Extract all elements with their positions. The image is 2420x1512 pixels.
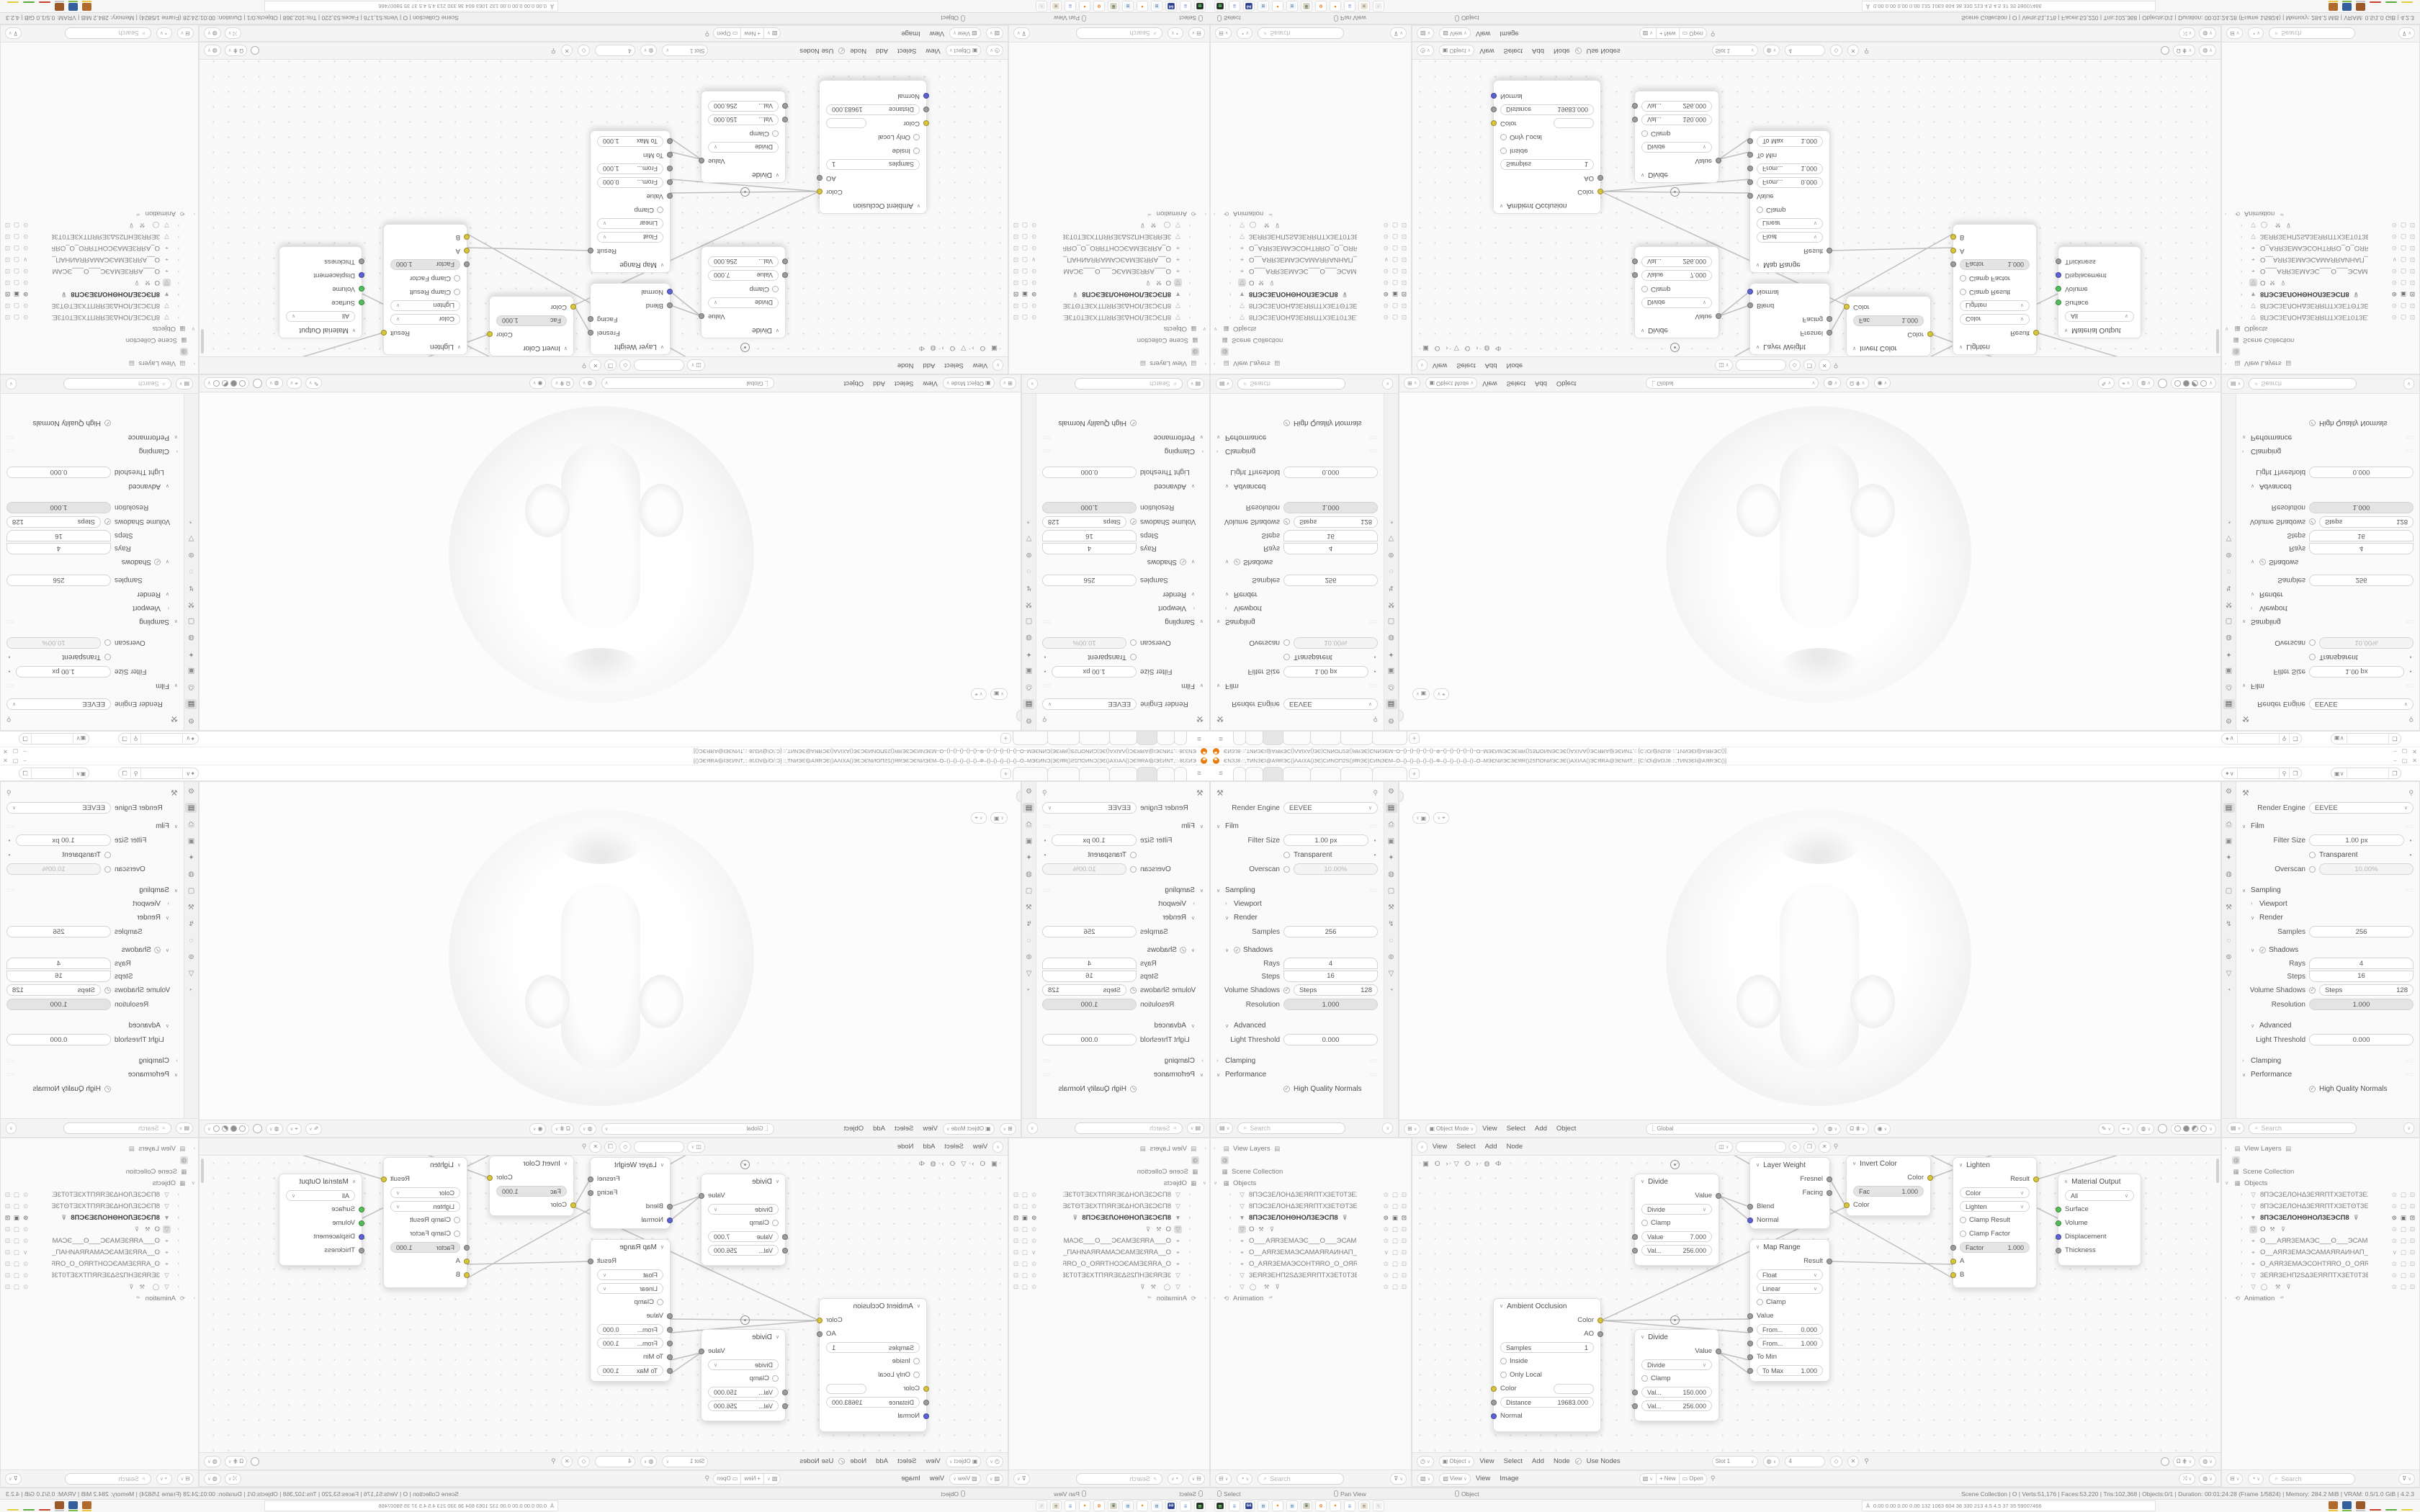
view-layer-tab-icon[interactable]: ▣ bbox=[1023, 666, 1035, 676]
toolbar-toggle-tab[interactable] bbox=[1399, 710, 1404, 721]
node-lighten[interactable]: ∨Lighten Result Color∨ Lighten∨ Clamp Re… bbox=[1953, 1157, 2037, 1288]
view-layer-selector[interactable]: ▣∨ ❐ bbox=[2331, 733, 2401, 744]
proportional-edit-button[interactable]: ◉∨ bbox=[529, 378, 547, 390]
material-datablock-icon[interactable]: ◍∨ bbox=[1763, 45, 1780, 57]
menu-image[interactable]: Image bbox=[1500, 1475, 1518, 1482]
node-material-output[interactable]: ∨Material Output All∨ Surface Volume Dis… bbox=[279, 1174, 362, 1266]
menu-view[interactable]: View bbox=[1476, 30, 1490, 37]
outliner-object[interactable]: 8ПЭС3ЕЛОНΔ3ЕЯRПТХ3ЕТ0Т3ЕХТ bbox=[1249, 1191, 1357, 1199]
blender-icon[interactable]: ● bbox=[1137, 1500, 1148, 1511]
workspace-tab[interactable] bbox=[1340, 732, 1373, 745]
menu-object[interactable]: Object bbox=[844, 1125, 864, 1133]
clamping-section[interactable]: Clamping bbox=[139, 447, 169, 455]
menu-image[interactable]: Image bbox=[1500, 30, 1518, 37]
scene-name-field[interactable] bbox=[2238, 734, 2280, 744]
performance-section[interactable]: Performance bbox=[1154, 433, 1195, 441]
retro-pc-icon[interactable]: ⌸ bbox=[1301, 1500, 1312, 1511]
performance-section[interactable]: Performance bbox=[1225, 1071, 1266, 1079]
viewport-canvas[interactable]: ∨▣ ∨⌖ bbox=[200, 394, 1021, 730]
steps-field[interactable]: 16 bbox=[6, 531, 111, 542]
properties-options-button[interactable]: ∨ bbox=[1027, 379, 1038, 390]
menu-add[interactable]: Add bbox=[876, 1457, 888, 1465]
viewport-gizmo-overlay-button[interactable]: ∨⌖ bbox=[971, 688, 986, 700]
vice-c64-icon[interactable]: 64 bbox=[1243, 1500, 1255, 1511]
pin-icon[interactable]: ⚲ bbox=[551, 47, 556, 55]
unlink-button[interactable]: ✕ bbox=[1847, 1456, 1860, 1467]
menu-add[interactable]: Add bbox=[873, 379, 885, 387]
viewport-subsection[interactable]: Viewport bbox=[2259, 900, 2287, 908]
node-ambient-occlusion[interactable]: ∨Ambient Occlusion Color AO Samples1 Ins… bbox=[1493, 1298, 1601, 1432]
viewport-gizmo-overlay-button[interactable]: ∨⌖ bbox=[1433, 688, 1448, 700]
light-threshold-field[interactable]: 0.000 bbox=[2309, 467, 2414, 478]
workspace-tab[interactable] bbox=[1013, 767, 1048, 780]
node-options-toggle[interactable] bbox=[2161, 1457, 2169, 1466]
outliner-object[interactable]: 8ПЭС3ЕЛОНΔ3ЕЯRПТХ3ЕТΘТ3ЕХТ bbox=[52, 1202, 160, 1210]
menu-node[interactable]: Node bbox=[850, 1457, 866, 1465]
volume-shadows-checkbox[interactable]: ✓ bbox=[1130, 519, 1137, 526]
object-tab-icon[interactable]: ▢ bbox=[1023, 886, 1035, 896]
menu-view[interactable]: View bbox=[923, 1125, 937, 1133]
data-tab-icon[interactable]: ▽ bbox=[1023, 968, 1035, 978]
notepad-icon[interactable]: ≣ bbox=[1229, 1500, 1240, 1511]
node-canvas[interactable]: ▣O› ▽O› ◍Φ ∨Ambient Occlusion Color AO S… bbox=[1412, 60, 2220, 356]
editor-type-button[interactable]: ▤∨ bbox=[176, 1122, 193, 1134]
outliner-camera[interactable]: О__АЯR3ЕМАЭСАМАЯRАИНАП__С bbox=[52, 1248, 160, 1256]
outliner-camera[interactable]: О__АЯR3ЕМАЭСАМАЯRАИНАП__С bbox=[52, 256, 160, 264]
outliner-object[interactable]: 8ПЭС3ЕЛОНΔ3ЕЯRПТХ3ЕТ0Т3ЕХТ bbox=[1063, 314, 1171, 322]
add-workspace-button[interactable]: + bbox=[1000, 733, 1011, 744]
fake-user-button[interactable]: ◇ bbox=[578, 45, 589, 57]
xray-toggle-button[interactable] bbox=[253, 379, 262, 388]
outliner-search-input[interactable]: ⌕Search bbox=[1076, 28, 1162, 40]
snap-toggle-group[interactable]: Ω⋕∨ bbox=[1846, 1123, 1868, 1135]
menu-select[interactable]: Select bbox=[944, 1143, 963, 1151]
scene-pin-icon[interactable]: ⚲ bbox=[2280, 768, 2290, 778]
outliner-camera[interactable]: О___АЯR3ЕМАЭС___О___ЭСАМ3 bbox=[1249, 1237, 1357, 1245]
workspace-tab[interactable] bbox=[1079, 732, 1110, 745]
render-tab-icon[interactable]: ▤ bbox=[2223, 803, 2235, 813]
tray-app-icon[interactable] bbox=[2329, 1, 2338, 11]
calculator-icon-2[interactable]: ⊞ bbox=[1122, 1500, 1134, 1511]
object-tab-icon[interactable]: ▢ bbox=[2223, 616, 2235, 626]
workspace-tab-active[interactable] bbox=[1137, 767, 1157, 780]
outliner-view-layers[interactable]: View Layers bbox=[138, 360, 176, 368]
steps-field[interactable]: 16 bbox=[1042, 531, 1137, 542]
clamping-section[interactable]: Clamping bbox=[1165, 1057, 1195, 1065]
modifiers-tab-icon[interactable]: ⚒ bbox=[186, 600, 197, 610]
outliner-camera[interactable]: О_АЯR3ЕМАЭСОНТЯRО_О_ОЯRТН bbox=[1249, 1260, 1357, 1268]
resolution-field[interactable]: 1.000 bbox=[6, 999, 111, 1010]
particles-tab-icon[interactable]: ↯ bbox=[1023, 919, 1035, 929]
outliner-scene-collection[interactable]: Scene Collection bbox=[2243, 337, 2294, 345]
transparent-checkbox[interactable] bbox=[1283, 654, 1290, 661]
view-layer-name-field[interactable] bbox=[31, 768, 73, 778]
constraints-tab-icon[interactable]: ⊚ bbox=[1386, 550, 1397, 560]
menu-add[interactable]: Add bbox=[923, 361, 936, 369]
outliner-object[interactable]: 8ПЭС3ЕЛОНΔ3ЕЯRПТХ3ЕТΘТ3ЕХТ bbox=[52, 302, 160, 310]
menu-image[interactable]: Image bbox=[901, 30, 920, 37]
object-tab-icon[interactable]: ▢ bbox=[1023, 616, 1035, 626]
volume-shadows-checkbox[interactable]: ✓ bbox=[2309, 519, 2316, 526]
outliner-display-mode-button[interactable]: ⊟∨ bbox=[177, 1473, 194, 1485]
transform-orientation-select[interactable]: ⎿Global∨ bbox=[1646, 378, 1819, 390]
workspace-tab[interactable] bbox=[1047, 732, 1080, 745]
pin-icon[interactable]: ⚲ bbox=[1711, 1475, 1716, 1482]
add-workspace-button[interactable]: + bbox=[1000, 768, 1011, 779]
editor-type-button[interactable]: ⊞∨ bbox=[1000, 1123, 1016, 1135]
scene-copy-icon[interactable]: ❐ bbox=[119, 734, 130, 744]
outliner-search-input[interactable]: ⌕Search bbox=[1076, 1473, 1162, 1485]
gimp-icon[interactable]: ✎ bbox=[1373, 1500, 1384, 1511]
output-tab-icon[interactable]: ⎙ bbox=[2223, 683, 2235, 693]
material-tab-icon[interactable]: ◔ bbox=[186, 985, 197, 995]
material-name-field[interactable] bbox=[1736, 360, 1786, 372]
render-engine-select[interactable]: EEVEE∨ bbox=[1283, 802, 1378, 814]
render-subsection[interactable]: Render bbox=[2259, 914, 2283, 922]
menu-view[interactable]: View bbox=[926, 47, 940, 55]
constraints-tab-icon[interactable]: ⊚ bbox=[1023, 550, 1035, 560]
pin-icon[interactable]: ⚲ bbox=[1373, 789, 1378, 797]
viewport-camera-overlay-button[interactable]: ∨▣ bbox=[990, 688, 1008, 700]
film-section[interactable]: Film bbox=[2251, 682, 2264, 690]
solid-shading-icon[interactable] bbox=[2183, 1125, 2190, 1132]
pin-icon[interactable]: ⚲ bbox=[6, 716, 12, 724]
menu-add[interactable]: Add bbox=[1535, 379, 1547, 387]
menu-add[interactable]: Add bbox=[1485, 361, 1497, 369]
outliner-filter-icon-button[interactable]: ◔∨ bbox=[1168, 1473, 1183, 1485]
outliner-search-input[interactable]: ⌕Search bbox=[65, 1473, 151, 1485]
menu-node[interactable]: Node bbox=[897, 1143, 914, 1151]
view-layer-copy-icon[interactable]: ❐ bbox=[19, 734, 30, 744]
render-subsection[interactable]: Render bbox=[1162, 590, 1186, 598]
outliner-objects-collection[interactable]: Objects bbox=[1233, 1179, 1256, 1187]
copy-datablock-button[interactable]: ❐ bbox=[604, 360, 617, 372]
render-subsection[interactable]: Render bbox=[2259, 590, 2283, 598]
node-material-output[interactable]: ∨Material Output All∨ Surface Volume Dis… bbox=[279, 246, 362, 338]
tray-app-icon[interactable] bbox=[55, 1, 64, 11]
pivot-point-select[interactable]: ◍∨ bbox=[1824, 378, 1841, 390]
wireframe-shading-icon[interactable] bbox=[239, 380, 246, 387]
overlays-toggle-button[interactable]: ◍∨ bbox=[2199, 28, 2216, 40]
modifiers-tab-icon[interactable]: ⚒ bbox=[1023, 600, 1035, 610]
pivot-point-select[interactable]: ◍∨ bbox=[1824, 1123, 1841, 1135]
node-canvas[interactable]: ▣O› ▽O› ◍Φ ∨Ambient Occlusion Color AO S… bbox=[1412, 1156, 2220, 1452]
close-button[interactable]: ✕ bbox=[3, 749, 8, 755]
properties-search-input[interactable]: ⌕Search bbox=[1075, 1122, 1183, 1134]
clamping-section[interactable]: Clamping bbox=[1225, 447, 1255, 455]
material-datablock-icon[interactable]: ◍∨ bbox=[1763, 1456, 1780, 1467]
overlays-toggle-button[interactable]: ◍∨ bbox=[266, 378, 283, 390]
menu-view[interactable]: View bbox=[973, 1143, 987, 1151]
xray-toggle-button[interactable] bbox=[2158, 379, 2167, 388]
overscan-checkbox[interactable] bbox=[1130, 866, 1137, 873]
shading-mode-group[interactable]: ∨ bbox=[2171, 1123, 2216, 1135]
viewport-camera-overlay-button[interactable]: ∨▣ bbox=[1412, 812, 1430, 824]
viewport-camera-overlay-button[interactable]: ∨▣ bbox=[1412, 688, 1430, 700]
data-tab-icon[interactable]: ▽ bbox=[1023, 534, 1035, 544]
workspace-tab[interactable] bbox=[1310, 732, 1341, 745]
data-tab-icon[interactable]: ▽ bbox=[1386, 534, 1397, 544]
view-layer-name-field[interactable] bbox=[2347, 734, 2389, 744]
outliner-objects-collection[interactable]: Objects bbox=[153, 1179, 176, 1187]
copy-datablock-button[interactable]: ❐ bbox=[1803, 360, 1816, 372]
properties-options-button[interactable]: ∨ bbox=[1382, 379, 1393, 390]
view-layer-tab-icon[interactable]: ▣ bbox=[1023, 836, 1035, 846]
node-ambient-occlusion[interactable]: ∨Ambient Occlusion Color AO Samples1 Ins… bbox=[819, 1298, 927, 1432]
pivot-point-select[interactable]: ◍∨ bbox=[579, 378, 596, 390]
menu-node[interactable]: Node bbox=[1554, 1457, 1570, 1465]
node-divide-2[interactable]: ∨Divide Value Divide∨ Clamp Val...150.00… bbox=[701, 91, 786, 183]
outliner-display-mode-button[interactable]: ⊟∨ bbox=[1188, 28, 1205, 40]
color-swatch[interactable] bbox=[1554, 1384, 1594, 1394]
transparent-checkbox[interactable] bbox=[1130, 654, 1137, 661]
notepad-icon[interactable]: ≣ bbox=[1229, 1, 1240, 12]
material-id-field[interactable]: 4 bbox=[1785, 1456, 1825, 1467]
overlays-toggle-button[interactable]: ◍∨ bbox=[204, 45, 221, 57]
fake-user-button[interactable]: ◇ bbox=[578, 1456, 589, 1467]
outliner-view-layers[interactable]: View Layers bbox=[1149, 1145, 1187, 1153]
scene-copy-icon[interactable]: ❐ bbox=[2290, 734, 2300, 744]
outliner-object[interactable]: O bbox=[1166, 279, 1171, 287]
tray-app-icon[interactable] bbox=[68, 1, 78, 11]
scene-selector[interactable]: ✦∨ ⚲ ❐ bbox=[118, 733, 199, 744]
blender-icon-2[interactable]: ● bbox=[1079, 1, 1090, 12]
output-tab-icon[interactable]: ⎙ bbox=[186, 683, 197, 693]
pin-icon[interactable]: ⚲ bbox=[2408, 789, 2414, 797]
firefox-icon[interactable]: ❂ bbox=[1315, 1500, 1327, 1511]
outliner-object[interactable]: 8ПЭС3ЕЛОНΔ3ЕЯRПТХ3ЕТ0Т3ЕХТ bbox=[52, 1191, 160, 1199]
volume-shadows-steps-field[interactable]: Steps128 bbox=[2319, 516, 2414, 528]
advanced-section[interactable]: Advanced bbox=[129, 1022, 161, 1030]
filter-size-field[interactable]: 1.00 px bbox=[2309, 834, 2404, 846]
retro-pc-icon[interactable]: ⌸ bbox=[1108, 1, 1119, 12]
outliner-scene-collection[interactable]: Scene Collection bbox=[1232, 1168, 1283, 1176]
film-section[interactable]: Film bbox=[2251, 822, 2264, 830]
advanced-section[interactable]: Advanced bbox=[1234, 482, 1265, 490]
outliner-animation[interactable]: Animation bbox=[1233, 1295, 1263, 1302]
view-layer-tab-icon[interactable]: ▣ bbox=[186, 836, 197, 846]
resolution-field[interactable]: 1.000 bbox=[1042, 999, 1137, 1010]
performance-section[interactable]: Performance bbox=[128, 433, 169, 441]
performance-section[interactable]: Performance bbox=[1225, 433, 1266, 441]
notepad-icon-2[interactable]: ≣ bbox=[1344, 1500, 1355, 1511]
image-new-button[interactable]: +New bbox=[740, 1473, 763, 1485]
physics-tab-icon[interactable]: ◌ bbox=[1386, 935, 1397, 945]
shader-type-select[interactable]: ▣Object∨ bbox=[1439, 45, 1474, 57]
pin-icon[interactable]: ⚲ bbox=[582, 1143, 587, 1151]
outliner-object[interactable]: O bbox=[2260, 1225, 2265, 1233]
unlink-button[interactable]: ✕ bbox=[1819, 1141, 1831, 1153]
editor-type-button[interactable]: ▧∨ bbox=[1417, 28, 1434, 40]
solid-shading-icon[interactable] bbox=[230, 1125, 237, 1132]
outliner-object[interactable]: 3ЕЯR3ЕНП2SΔ3ЕЯRПТХ3ЕТ0Т3ЕХТ bbox=[2260, 233, 2368, 241]
volume-shadows-checkbox[interactable]: ✓ bbox=[1283, 519, 1290, 526]
node-map-range[interactable]: ∨Map Range Result Float∨ Linear∨ Clamp V… bbox=[1749, 1239, 1830, 1382]
light-threshold-field[interactable]: 0.000 bbox=[1042, 1034, 1137, 1045]
menu-add[interactable]: Add bbox=[1532, 47, 1544, 55]
volume-shadows-steps-field[interactable]: Steps128 bbox=[6, 516, 101, 528]
render-tab-icon[interactable]: ▤ bbox=[2223, 699, 2235, 709]
overscan-checkbox[interactable] bbox=[2309, 640, 2316, 647]
modifiers-tab-icon[interactable]: ⚒ bbox=[1023, 902, 1035, 912]
mode-select[interactable]: ▣Object Mode∨ bbox=[943, 378, 995, 390]
material-shading-icon[interactable] bbox=[222, 1125, 228, 1132]
minimize-button[interactable]: – bbox=[2393, 757, 2396, 764]
properties-options-button[interactable]: ∨ bbox=[1027, 1122, 1038, 1134]
shadows-section[interactable]: Shadows bbox=[1243, 946, 1273, 954]
material-id-field[interactable]: 4 bbox=[595, 1456, 635, 1467]
editor-type-button[interactable]: ▧∨ bbox=[986, 1473, 1003, 1485]
object-tab-icon[interactable]: ▢ bbox=[1386, 616, 1397, 626]
transparent-checkbox[interactable] bbox=[1130, 852, 1137, 858]
constraints-tab-icon[interactable]: ⊚ bbox=[2223, 952, 2235, 962]
menu-select[interactable]: Select bbox=[1456, 1143, 1475, 1151]
film-section[interactable]: Film bbox=[1225, 822, 1239, 830]
material-datablock-icon[interactable]: ◫∨ bbox=[1715, 360, 1732, 372]
properties-search-input[interactable]: ⌕Search bbox=[1237, 379, 1345, 390]
tool-tab-icon[interactable]: ⚙ bbox=[186, 716, 197, 726]
overscan-field[interactable]: 10.00% bbox=[2319, 637, 2414, 649]
slot-select[interactable]: Slot 1∨ bbox=[1712, 45, 1758, 57]
film-section[interactable]: Film bbox=[1181, 822, 1195, 830]
image-mode-select[interactable]: ▧View∨ bbox=[1439, 1473, 1471, 1485]
workspace-tab[interactable] bbox=[1310, 767, 1341, 780]
hq-normals-checkbox[interactable]: ✓ bbox=[104, 420, 111, 427]
outliner-camera[interactable]: О__АЯR3ЕМАЭСАМАЯRАИНАП__С bbox=[2260, 1248, 2368, 1256]
scene-tab-icon[interactable]: ✦ bbox=[2223, 852, 2235, 863]
view-layer-copy-icon[interactable]: ❐ bbox=[2389, 768, 2400, 778]
outliner-search-input[interactable]: ⌕Search bbox=[1258, 28, 1344, 40]
gimp-icon[interactable]: ✎ bbox=[1373, 1, 1384, 12]
light-threshold-field[interactable]: 0.000 bbox=[6, 1034, 111, 1045]
node-options-toggle[interactable] bbox=[2161, 47, 2169, 55]
sampling-section[interactable]: Sampling bbox=[1225, 618, 1255, 626]
rays-field[interactable]: 4 bbox=[1042, 958, 1137, 969]
editor-type-button[interactable]: ▤∨ bbox=[2227, 379, 2244, 390]
outliner-filter-icon-button[interactable]: ◔∨ bbox=[156, 28, 172, 40]
outliner-objects-collection[interactable]: Objects bbox=[2244, 1179, 2267, 1187]
node-divide-1[interactable]: ∨Divide Value Divide∨ Clamp Value7.000 V… bbox=[701, 1174, 786, 1266]
shader-type-select[interactable]: ▣Object∨ bbox=[1439, 1456, 1474, 1467]
constraints-tab-icon[interactable]: ⊚ bbox=[2223, 550, 2235, 560]
render-engine-select[interactable]: EEVEE∨ bbox=[1042, 698, 1137, 710]
resolution-field[interactable]: 1.000 bbox=[2309, 999, 2414, 1010]
editor-type-button[interactable]: ▤∨ bbox=[1187, 1122, 1204, 1134]
image-open-button[interactable]: ▭Open bbox=[713, 1473, 740, 1485]
shader-type-select[interactable]: ▣Object∨ bbox=[946, 45, 981, 57]
outliner-object[interactable]: O bbox=[1249, 1225, 1254, 1233]
outliner-object[interactable]: O bbox=[1249, 279, 1254, 287]
outliner-filter-button[interactable]: ⊽∨ bbox=[1013, 28, 1030, 40]
system-monitor-widget[interactable]: Å0.00 0.00 0.00 0.00 132 1063 604 38 330… bbox=[264, 1, 558, 12]
advanced-section[interactable]: Advanced bbox=[129, 482, 161, 490]
editor-type-button[interactable]: ▤∨ bbox=[1216, 1122, 1233, 1134]
pin-icon[interactable]: ⚲ bbox=[1042, 789, 1047, 797]
node-layer-weight[interactable]: ∨Layer Weight Fresnel Facing Blend Norma… bbox=[1749, 283, 1830, 355]
blender-icon[interactable]: ● bbox=[1137, 1, 1148, 12]
image-new-button[interactable]: +New bbox=[1657, 1473, 1680, 1485]
properties-search-input[interactable]: ⌕Search bbox=[2249, 1122, 2357, 1134]
viewport-3d[interactable]: ∨▣ ∨⌖ ⊞∨ ▣Object Mode∨ View Select Add O… bbox=[199, 374, 1021, 731]
steps-field[interactable]: 16 bbox=[1042, 971, 1137, 982]
notepad-icon-2[interactable]: ≣ bbox=[1065, 1, 1076, 12]
pin-icon[interactable]: ⚲ bbox=[551, 1457, 556, 1465]
resolution-field[interactable]: 1.000 bbox=[1283, 999, 1378, 1010]
close-button[interactable]: ✕ bbox=[2412, 749, 2417, 755]
view-layer-tab-icon[interactable]: ▣ bbox=[2223, 836, 2235, 846]
view-layer-copy-icon[interactable]: ❐ bbox=[2389, 734, 2400, 744]
particles-tab-icon[interactable]: ↯ bbox=[2223, 583, 2235, 593]
render-tab-icon[interactable]: ▤ bbox=[1023, 803, 1035, 813]
performance-section[interactable]: Performance bbox=[128, 1071, 169, 1079]
material-id-field[interactable]: 4 bbox=[1785, 45, 1825, 57]
outliner-filter-icon-button[interactable]: ◔∨ bbox=[1237, 1473, 1252, 1485]
tool-tab-icon[interactable]: ⚙ bbox=[1023, 786, 1035, 796]
outliner-animation[interactable]: Animation bbox=[2244, 210, 2275, 218]
tray-app-icon[interactable] bbox=[82, 1501, 91, 1511]
fake-user-button[interactable]: ◇ bbox=[1830, 45, 1842, 57]
resolution-field[interactable]: 1.000 bbox=[6, 502, 111, 513]
rays-field[interactable]: 4 bbox=[2309, 543, 2414, 554]
shadows-section[interactable]: Shadows bbox=[1147, 558, 1177, 566]
light-threshold-field[interactable]: 0.000 bbox=[1042, 467, 1137, 478]
overscan-field[interactable]: 10.00% bbox=[6, 637, 101, 649]
render-tab-icon[interactable]: ▤ bbox=[1023, 699, 1035, 709]
snap-toggle-group[interactable]: Ω⋕∨ bbox=[551, 378, 573, 390]
outliner-camera[interactable]: О___АЯR3ЕМАЭС___О___ЭСАМ3 bbox=[1063, 1237, 1171, 1245]
minimize-button[interactable]: – bbox=[23, 757, 26, 764]
snap-node-group[interactable]: Ω⋕∨ bbox=[225, 1456, 247, 1467]
outliner-object[interactable]: 8ПЭС3ЕЛОНΔ3ЕЯRПТХ3ЕТ0Т3ЕХТ bbox=[1249, 314, 1357, 322]
material-shading-icon[interactable] bbox=[2192, 1125, 2198, 1132]
light-threshold-field[interactable]: 0.000 bbox=[1283, 467, 1378, 478]
material-tab-icon[interactable]: ◔ bbox=[186, 517, 197, 527]
slot-select[interactable]: Slot 1∨ bbox=[662, 1456, 708, 1467]
blender-icon-2[interactable]: ● bbox=[1079, 1500, 1090, 1511]
rendered-shading-icon[interactable] bbox=[2200, 1125, 2207, 1132]
pin-icon[interactable]: ⚲ bbox=[1834, 1143, 1839, 1151]
samples-field[interactable]: 256 bbox=[2309, 926, 2414, 937]
tray-app-icon[interactable] bbox=[2342, 1501, 2352, 1511]
clamping-section[interactable]: Clamping bbox=[2251, 1057, 2281, 1065]
material-tab-icon[interactable]: ◔ bbox=[2223, 517, 2235, 527]
volume-shadows-checkbox[interactable]: ✓ bbox=[104, 987, 111, 994]
fake-user-button[interactable]: ◇ bbox=[619, 360, 631, 372]
outliner-objects-collection[interactable]: Objects bbox=[1233, 325, 1256, 333]
menu-view[interactable]: View bbox=[1433, 1143, 1447, 1151]
copy-datablock-button[interactable]: ❐ bbox=[1803, 1141, 1816, 1153]
physics-tab-icon[interactable]: ◌ bbox=[2223, 935, 2235, 945]
menu-add[interactable]: Add bbox=[1535, 1125, 1547, 1133]
clamping-section[interactable]: Clamping bbox=[1225, 1057, 1255, 1065]
shadows-section[interactable]: Shadows bbox=[122, 946, 151, 954]
transparent-checkbox[interactable] bbox=[1283, 852, 1290, 858]
modifiers-tab-icon[interactable]: ⚒ bbox=[186, 902, 197, 912]
material-datablock-icon[interactable]: ◫∨ bbox=[687, 1141, 704, 1153]
light-threshold-field[interactable]: 0.000 bbox=[2309, 1034, 2414, 1045]
workspace-tab[interactable] bbox=[1283, 767, 1311, 780]
outliner-camera[interactable]: О___АЯR3ЕМАЭС___О___ЭСАМ3 bbox=[2260, 268, 2368, 276]
outliner-object[interactable]: O bbox=[2260, 279, 2265, 287]
tray-app-icon[interactable] bbox=[2356, 1501, 2365, 1511]
outliner-camera[interactable]: О___АЯR3ЕМАЭС___О___ЭСАМ3 bbox=[2260, 1237, 2368, 1245]
light-threshold-field[interactable]: 0.000 bbox=[1283, 1034, 1378, 1045]
outliner-objects-collection[interactable]: Objects bbox=[153, 325, 176, 333]
image-transform-button[interactable]: ⤨∨ bbox=[225, 1473, 241, 1485]
world-tab-icon[interactable]: ◍ bbox=[186, 869, 197, 879]
editor-type-button[interactable]: ⊞∨ bbox=[1000, 378, 1016, 390]
toolbar-toggle-tab[interactable] bbox=[1016, 791, 1021, 802]
